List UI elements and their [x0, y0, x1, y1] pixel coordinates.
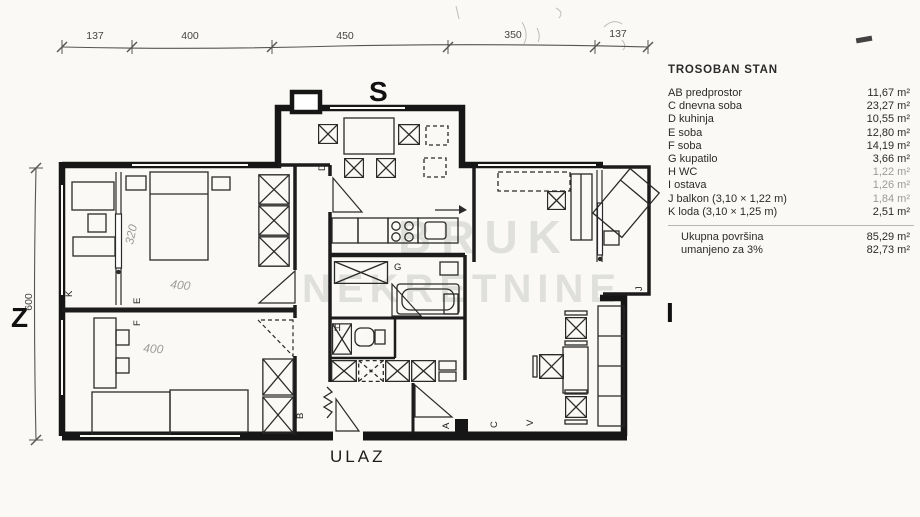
- chair: [319, 125, 338, 144]
- chair: [116, 358, 129, 373]
- compass-west: Z: [11, 302, 28, 333]
- hall-closets: [332, 361, 456, 382]
- legend-reduced-row: umanjeno za 3%82,73 m²: [668, 244, 914, 257]
- room-label-v: V: [525, 419, 536, 426]
- nightstand: [212, 177, 230, 190]
- legend-label: E soba: [668, 127, 702, 140]
- dining-table: [344, 118, 394, 154]
- furniture-room-e: [126, 172, 289, 266]
- scanned-floorplan-page: BRUK NEKRETNINE 137 400 450 350 137 600 …: [0, 0, 920, 517]
- legend-row: H WC1,22 m²: [668, 166, 914, 179]
- room-label-e: E: [132, 298, 143, 304]
- room-label-g: G: [394, 262, 401, 273]
- legend-value: 1,22 m²: [873, 166, 914, 179]
- wardrobe-e: [259, 175, 289, 266]
- legend-row: C dnevna soba23,27 m²: [668, 100, 914, 113]
- dim-top-3: 450: [336, 30, 354, 42]
- door-kitchen: [333, 178, 362, 212]
- watermark-line2: NEKRETNINE: [302, 267, 622, 311]
- legend-rows: AB predprostor11,67 m² C dnevna soba23,2…: [668, 87, 914, 219]
- legend-label: AB predprostor: [668, 87, 742, 100]
- side-table: [563, 347, 588, 393]
- chair: [548, 192, 566, 210]
- legend-reduced-label: umanjeno za 3%: [668, 244, 763, 257]
- dim-top-5: 137: [609, 28, 627, 40]
- furniture-room-f: [92, 318, 293, 434]
- coffee-table: [540, 355, 564, 379]
- dimension-labels-top: 137 400 450 350 137: [86, 28, 627, 42]
- room-label-k: K: [64, 290, 75, 297]
- legend-value: 10,55 m²: [867, 113, 914, 126]
- room-label-j: J: [634, 286, 645, 291]
- room-label-c: C: [489, 421, 500, 428]
- radiator-symbol: [324, 387, 332, 418]
- legend-label: H WC: [668, 166, 697, 179]
- hand-note-3: 400: [143, 341, 164, 356]
- legend-panel: TROSOBAN STAN AB predprostor11,67 m² C d…: [668, 64, 914, 257]
- legend-label: G kupatilo: [668, 153, 718, 166]
- legend-label: I ostava: [668, 179, 707, 192]
- armchair: [566, 318, 587, 339]
- legend-label: J balkon (3,10 × 1,22 m): [668, 193, 787, 206]
- handwritten-notes: 320 400 400: [122, 223, 191, 357]
- room-label-d: D: [317, 164, 328, 171]
- cistern: [375, 330, 385, 344]
- room-label-b: B: [295, 413, 306, 419]
- armchair: [566, 397, 587, 418]
- legend-value: 11,67 m²: [867, 87, 914, 100]
- legend-title: TROSOBAN STAN: [668, 64, 914, 76]
- legend-total-row: Ukupna površina85,29 m²: [668, 231, 914, 244]
- hand-note-2: 400: [170, 277, 192, 293]
- toilet: [355, 328, 374, 346]
- hand-note-1: 320: [122, 223, 140, 246]
- chair: [345, 159, 364, 178]
- wardrobe-f: [263, 359, 293, 433]
- legend-value: 23,27 m²: [867, 100, 914, 113]
- legend-divider: [668, 225, 914, 226]
- door-room-f: [258, 320, 293, 356]
- compass-east: I: [666, 297, 674, 328]
- legend-value: 2,51 m²: [873, 206, 914, 219]
- room-label-a: A: [441, 422, 452, 429]
- furniture-loggia-k: [72, 182, 115, 256]
- double-bed: [150, 172, 208, 260]
- dim-top-1: 137: [86, 30, 104, 42]
- legend-row: K loda (3,10 × 1,25 m)2,51 m²: [668, 206, 914, 219]
- bed: [92, 392, 170, 434]
- legend-row: J balkon (3,10 × 1,22 m)1,84 m²: [668, 193, 914, 206]
- room-label-f: F: [132, 320, 143, 326]
- legend-value: 1,26 m²: [873, 179, 914, 192]
- legend-label: K loda (3,10 × 1,25 m): [668, 206, 777, 219]
- room-label-h: H: [334, 323, 341, 334]
- dim-top-4: 350: [504, 29, 522, 41]
- legend-total-label: Ukupna površina: [668, 231, 764, 244]
- bed: [170, 390, 248, 432]
- legend-value: 3,66 m²: [873, 153, 914, 166]
- chair: [377, 159, 396, 178]
- wardrobe-dashed: [498, 172, 570, 191]
- chair: [399, 125, 420, 145]
- dimension-line-top: [57, 40, 653, 54]
- desk: [94, 318, 116, 388]
- door-living: [415, 385, 452, 417]
- legend-label: F soba: [668, 140, 702, 153]
- legend-value: 1,84 m²: [873, 193, 914, 206]
- legend-row: I ostava1,26 m²: [668, 179, 914, 192]
- compass-north: S: [369, 76, 388, 107]
- legend-total-value: 85,29 m²: [867, 231, 914, 244]
- nightstand: [126, 176, 146, 190]
- door-entrance: [336, 399, 359, 431]
- legend-row: AB predprostor11,67 m²: [668, 87, 914, 100]
- legend-row: F soba14,19 m²: [668, 140, 914, 153]
- legend-value: 12,80 m²: [867, 127, 914, 140]
- legend-reduced-value: 82,73 m²: [867, 244, 914, 257]
- legend-value: 14,19 m²: [867, 140, 914, 153]
- scan-smudge: [856, 36, 873, 44]
- entrance-label: ULAZ: [330, 447, 385, 466]
- legend-row: E soba12,80 m²: [668, 127, 914, 140]
- legend-label: C dnevna soba: [668, 100, 742, 113]
- wall-pillar: [455, 419, 468, 434]
- legend-row: D kuhinja10,55 m²: [668, 113, 914, 126]
- chimney-stub: [292, 92, 320, 112]
- glazing-balcony: [597, 170, 603, 262]
- chair-dashed: [426, 126, 448, 145]
- chair-dashed: [424, 158, 446, 177]
- dim-top-2: 400: [181, 30, 199, 42]
- legend-row: G kupatilo3,66 m²: [668, 153, 914, 166]
- chair: [116, 330, 129, 345]
- legend-label: D kuhinja: [668, 113, 714, 126]
- door-room-e: [259, 271, 295, 303]
- glazing-loggia: [116, 172, 122, 305]
